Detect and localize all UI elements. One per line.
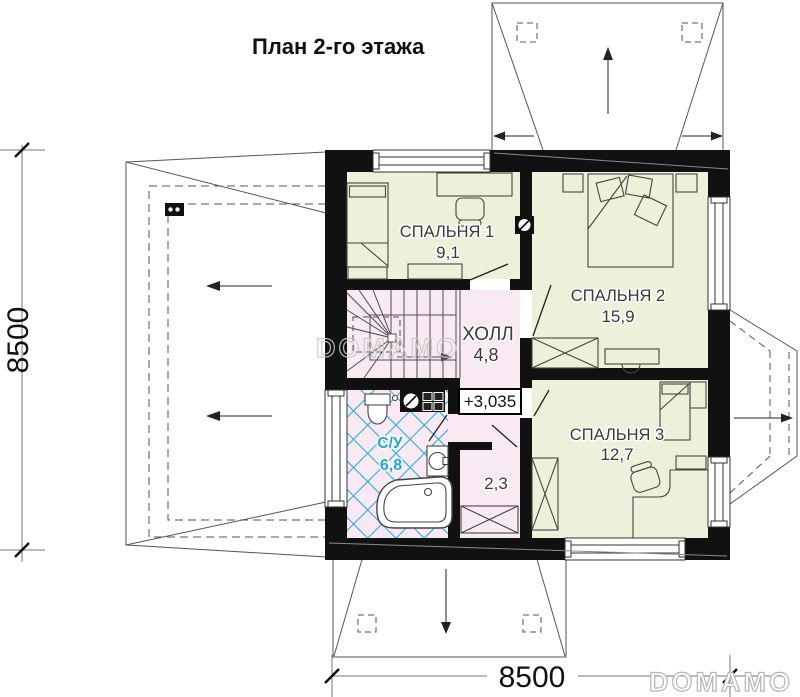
brand-logo: DOMAMO [649,667,793,697]
washing-machine-icon [400,390,445,412]
bay-roof-outline [730,310,797,504]
label-storage-area: 2,3 [484,474,508,493]
chimney-icon [165,203,184,216]
label-bedroom-1-name: СПАЛЬНЯ 1 [400,223,494,241]
floor-plan-drawing: +3,035 СПАЛЬНЯ 1 9,1 СПАЛЬНЯ 2 15,9 СПАЛ… [0,0,800,697]
slope-arrow-top-right [682,132,723,141]
floor-plan-page: +3,035 СПАЛЬНЯ 1 9,1 СПАЛЬНЯ 2 15,9 СПАЛ… [0,0,800,697]
room-bedroom-2 [532,172,708,368]
slope-arrow-left-2 [206,411,272,421]
watermark: DOMAMO [316,333,460,363]
page-title: План 2-го этажа [252,34,425,59]
slope-arrow-top-left [493,132,534,141]
window-left [325,390,347,507]
label-bedroom-2-name: СПАЛЬНЯ 2 [571,287,665,305]
window-right-upper [708,197,730,310]
elevation-mark-value: +3,035 [464,392,516,411]
left-roof-outline [126,152,326,557]
slope-arrow-left-1 [206,281,272,291]
label-bedroom-3-area: 12,7 [600,445,633,464]
dimension-bottom-value: 8500 [499,661,566,694]
label-bedroom-1-area: 9,1 [436,243,460,262]
window-top [373,150,490,172]
window-bottom [565,538,685,560]
room-storage [460,450,520,538]
vent-shaft-icon [515,216,534,234]
dimension-left-value: 8500 [2,307,35,374]
label-bedroom-3-name: СПАЛЬНЯ 3 [570,426,664,444]
slope-arrow-right [734,414,793,423]
corner-bath-icon [377,477,452,528]
label-bathroom-name: С/У [377,435,403,452]
dimension-left: 8500 [0,143,45,562]
slope-arrow-up [603,47,613,114]
washbasin-icon [427,446,448,476]
slope-arrow-down [441,569,451,634]
window-right-lower [708,457,730,527]
elevation-mark: +3,035 [459,389,521,414]
label-bathroom-area: 6,8 [380,457,402,474]
label-hall-name: ХОЛЛ [462,324,514,345]
bottom-roof-outline [333,556,566,657]
label-bedroom-2-area: 15,9 [601,307,634,326]
label-hall-area: 4,8 [473,345,498,365]
